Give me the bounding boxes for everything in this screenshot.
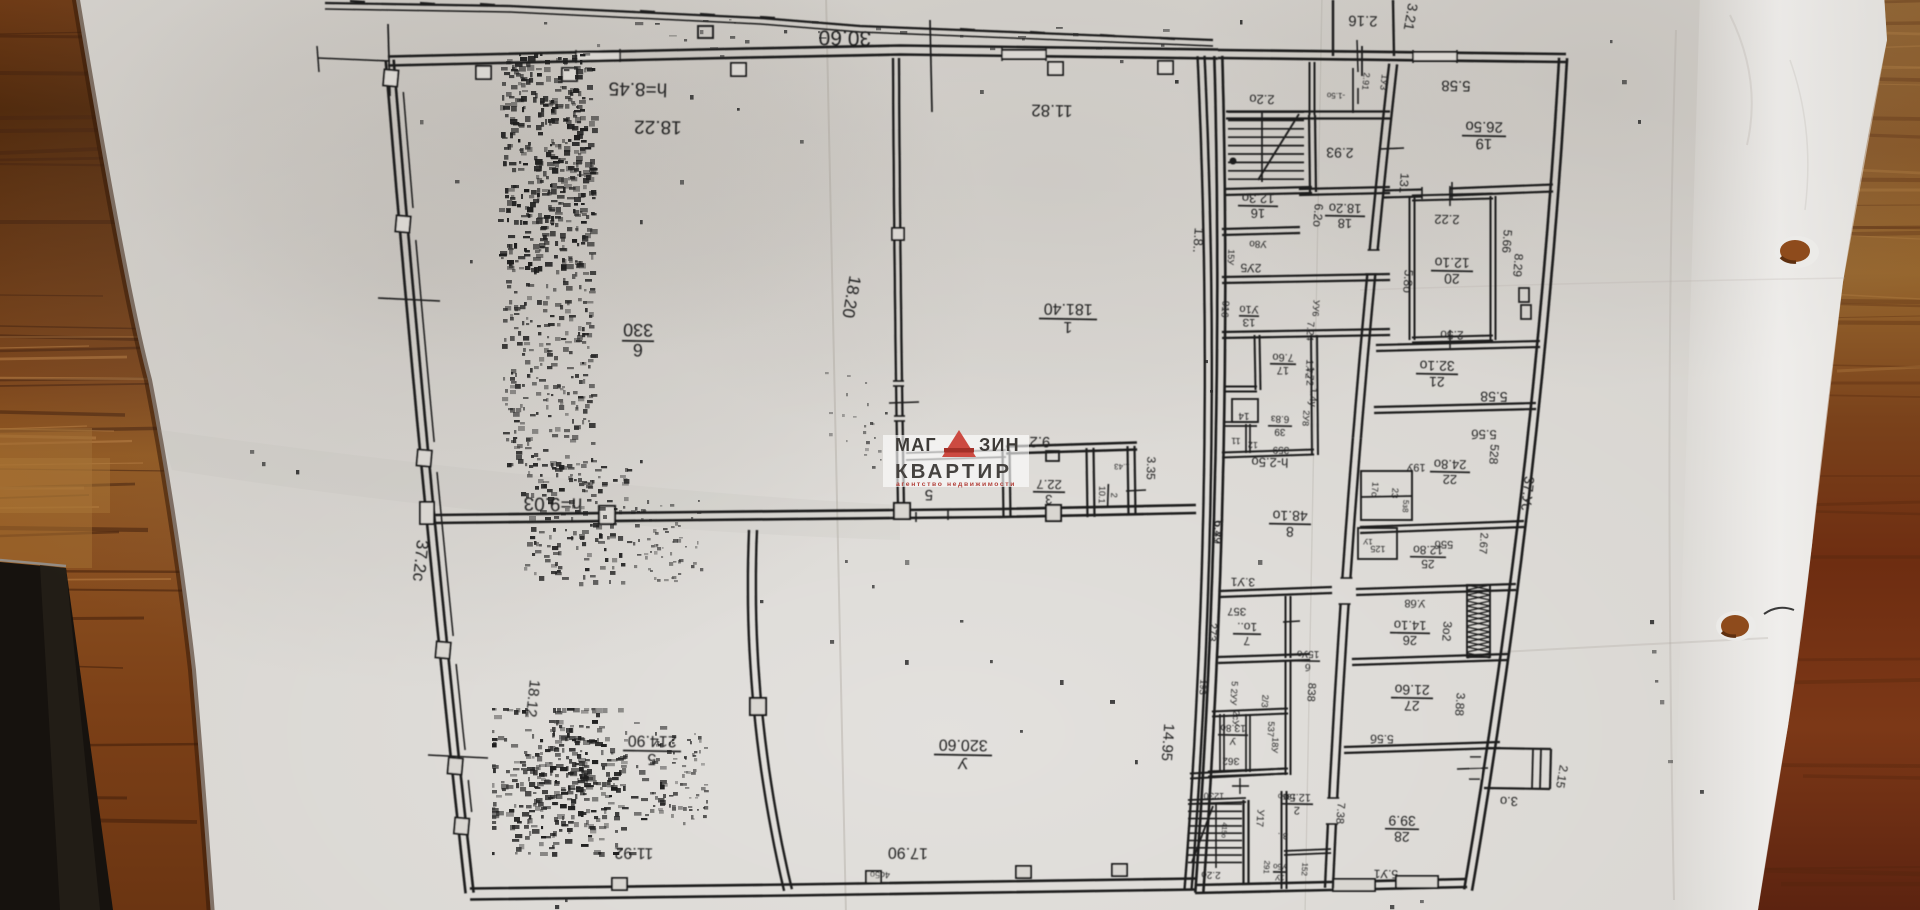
svg-text:24.8о: 24.8о: [1434, 457, 1467, 473]
svg-text:152: 152: [1300, 862, 1310, 876]
svg-text:16: 16: [1251, 206, 1266, 221]
svg-text:6: 6: [633, 340, 643, 360]
svg-text:2У5: 2У5: [1240, 261, 1262, 275]
svg-text:1.72: 1.72: [1303, 366, 1315, 387]
svg-text:359: 359: [1272, 444, 1289, 455]
svg-text:330: 330: [623, 320, 653, 341]
svg-text:18.22: 18.22: [634, 116, 682, 138]
svg-text:18: 18: [1338, 216, 1353, 231]
svg-text:3: 3: [1045, 492, 1052, 507]
svg-text:528: 528: [1486, 444, 1501, 465]
svg-text:14: 14: [1238, 410, 1250, 421]
svg-text:3о2: 3о2: [1439, 621, 1454, 642]
svg-text:12.1о: 12.1о: [1434, 255, 1470, 272]
svg-text:У: У: [1229, 735, 1236, 746]
svg-text:22: 22: [1443, 472, 1458, 487]
svg-text:181.40: 181.40: [1043, 300, 1092, 318]
svg-text:26: 26: [1403, 633, 1418, 648]
svg-text:5З7: 5З7: [1265, 721, 1276, 737]
svg-text:214.90: 214.90: [627, 732, 676, 750]
svg-text:28: 28: [1394, 829, 1410, 845]
svg-text:32.1о: 32.1о: [1419, 358, 1455, 375]
svg-text:7: 7: [1243, 634, 1250, 648]
svg-text:27: 27: [1404, 698, 1420, 714]
svg-text:h=8.45: h=8.45: [608, 77, 667, 99]
svg-text:1У: 1У: [1274, 873, 1285, 882]
svg-text:15Уо: 15Уо: [1296, 648, 1319, 659]
svg-text:3.35: 3.35: [1144, 456, 1159, 480]
svg-text:4о5о: 4о5о: [870, 870, 890, 880]
svg-text:1УЗ: 1УЗ: [1378, 74, 1390, 91]
svg-text:17: 17: [1277, 364, 1289, 376]
svg-text:2: 2: [1294, 804, 1300, 816]
svg-text:39.9: 39.9: [1388, 813, 1416, 829]
svg-text:б: б: [1305, 661, 1311, 673]
svg-text:3.о: 3.о: [1500, 794, 1518, 809]
svg-text:У: У: [957, 754, 968, 771]
svg-text:7.24: 7.24: [1303, 321, 1315, 342]
svg-text:агентство недвижимости: агентство недвижимости: [896, 481, 1016, 488]
svg-text:14.1о: 14.1о: [1394, 618, 1427, 634]
svg-text:3.88: 3.88: [1452, 692, 1468, 717]
svg-text:У5о: У5о: [1272, 862, 1287, 871]
svg-text:2: 2: [1109, 493, 1119, 498]
svg-text:З57: З57: [1227, 605, 1246, 617]
svg-text:З..: З..: [1278, 831, 1289, 841]
svg-text:11: 11: [1231, 436, 1241, 446]
svg-text:1З: 1З: [1242, 316, 1255, 328]
svg-text:h-2.5о: h-2.5о: [1251, 455, 1288, 471]
svg-text:-1.5о: -1.5о: [1326, 91, 1345, 100]
svg-text:26.5о: 26.5о: [1465, 118, 1503, 136]
svg-text:17.90: 17.90: [888, 844, 928, 862]
svg-text:5 2УУ: 5 2УУ: [1228, 681, 1240, 706]
svg-text:2У8: 2У8: [1300, 410, 1311, 426]
svg-text:3.У1: 3.У1: [1230, 575, 1255, 589]
svg-text:8.29: 8.29: [1510, 253, 1526, 278]
svg-text:1о..: 1о..: [1237, 620, 1257, 634]
svg-text:19: 19: [1475, 135, 1492, 152]
svg-text:6.У7: 6.У7: [1210, 520, 1226, 546]
svg-text:6.8з: 6.8з: [1270, 413, 1289, 424]
svg-text:19З: 19З: [1197, 679, 1208, 695]
svg-text:2сУ: 2сУ: [1230, 710, 1241, 726]
svg-text:5.58: 5.58: [1441, 77, 1470, 95]
svg-text:18У: 18У: [1269, 737, 1280, 754]
svg-text:5.5б: 5.5б: [1471, 427, 1497, 442]
svg-text:2З: 2З: [1390, 488, 1401, 499]
svg-text:2.2о: 2.2о: [1249, 92, 1275, 107]
svg-text:5.5б: 5.5б: [1370, 732, 1394, 746]
svg-text:УУ6: УУ6: [1310, 300, 1321, 317]
svg-text:ЗИН: ЗИН: [979, 435, 1020, 455]
svg-text:5.66: 5.66: [1499, 229, 1515, 254]
svg-text:320.60: 320.60: [938, 736, 987, 754]
svg-text:9.2: 9.2: [1029, 433, 1050, 450]
svg-text:5.8о: 5.8о: [1400, 269, 1416, 294]
svg-text:2.22: 2.22: [1434, 212, 1460, 227]
svg-text:1.8..: 1.8..: [1190, 227, 1207, 253]
svg-text:5.У1: 5.У1: [1373, 867, 1398, 881]
svg-text:15У: 15У: [1225, 249, 1236, 266]
svg-text:11.82: 11.82: [1031, 101, 1073, 121]
svg-text:27З: 27З: [1205, 622, 1218, 642]
svg-text:МАГ: МАГ: [895, 435, 937, 455]
svg-text:У17: У17: [1253, 809, 1265, 828]
svg-text:25: 25: [1421, 557, 1435, 571]
svg-text:1: 1: [1063, 318, 1072, 335]
svg-text:У1о: У1о: [1239, 303, 1258, 315]
svg-text:17с: 17с: [1369, 482, 1380, 498]
svg-text:10.1: 10.1: [1097, 486, 1108, 504]
svg-text:55б: 55б: [1435, 538, 1454, 550]
svg-text:2/З: 2/З: [1260, 694, 1271, 708]
svg-text:1.4у: 1.4у: [1306, 387, 1318, 407]
svg-text:6.2о: 6.2о: [1310, 203, 1326, 228]
svg-text:415о: 415о: [1219, 822, 1227, 838]
svg-text:2.2о: 2.2о: [1201, 869, 1221, 880]
svg-text:8З8: 8З8: [1304, 682, 1317, 702]
svg-text:5: 5: [925, 486, 934, 503]
svg-text:2.16: 2.16: [1348, 12, 1377, 30]
svg-text:48.1о: 48.1о: [1272, 508, 1308, 525]
svg-text:1.43: 1.43: [1114, 462, 1130, 471]
svg-text:39: 39: [1274, 426, 1286, 437]
svg-text:2.5о: 2.5о: [1440, 328, 1464, 342]
svg-text:18.2о: 18.2о: [1329, 201, 1362, 217]
svg-text:21: 21: [1429, 374, 1445, 390]
svg-text:22.7: 22.7: [1036, 477, 1062, 492]
svg-text:14.95: 14.95: [1158, 723, 1178, 762]
svg-text:291: 291: [1262, 860, 1272, 874]
svg-text:7.38: 7.38: [1333, 802, 1346, 824]
svg-text:1У: 1У: [1362, 537, 1373, 546]
svg-text:З62: З62: [1222, 755, 1240, 766]
svg-text:2.91: 2.91: [1360, 72, 1372, 90]
svg-text:8: 8: [1286, 524, 1294, 540]
svg-text:2.67: 2.67: [1476, 532, 1489, 554]
svg-text:20: 20: [1444, 271, 1460, 287]
svg-text:У8о: У8о: [1249, 238, 1267, 249]
svg-text:12.3о: 12.3о: [1242, 191, 1275, 207]
svg-text:У.б8: У.б8: [1404, 597, 1425, 609]
svg-text:916: 916: [1218, 300, 1230, 318]
svg-text:2.93: 2.93: [1326, 145, 1354, 161]
svg-text:КВАРТИР: КВАРТИР: [895, 460, 1012, 483]
svg-text:12.5о: 12.5о: [1283, 791, 1311, 803]
svg-text:5з8: 5з8: [1401, 500, 1411, 514]
svg-text:21.6о: 21.6о: [1394, 682, 1430, 699]
svg-text:7.6о: 7.6о: [1272, 351, 1294, 363]
